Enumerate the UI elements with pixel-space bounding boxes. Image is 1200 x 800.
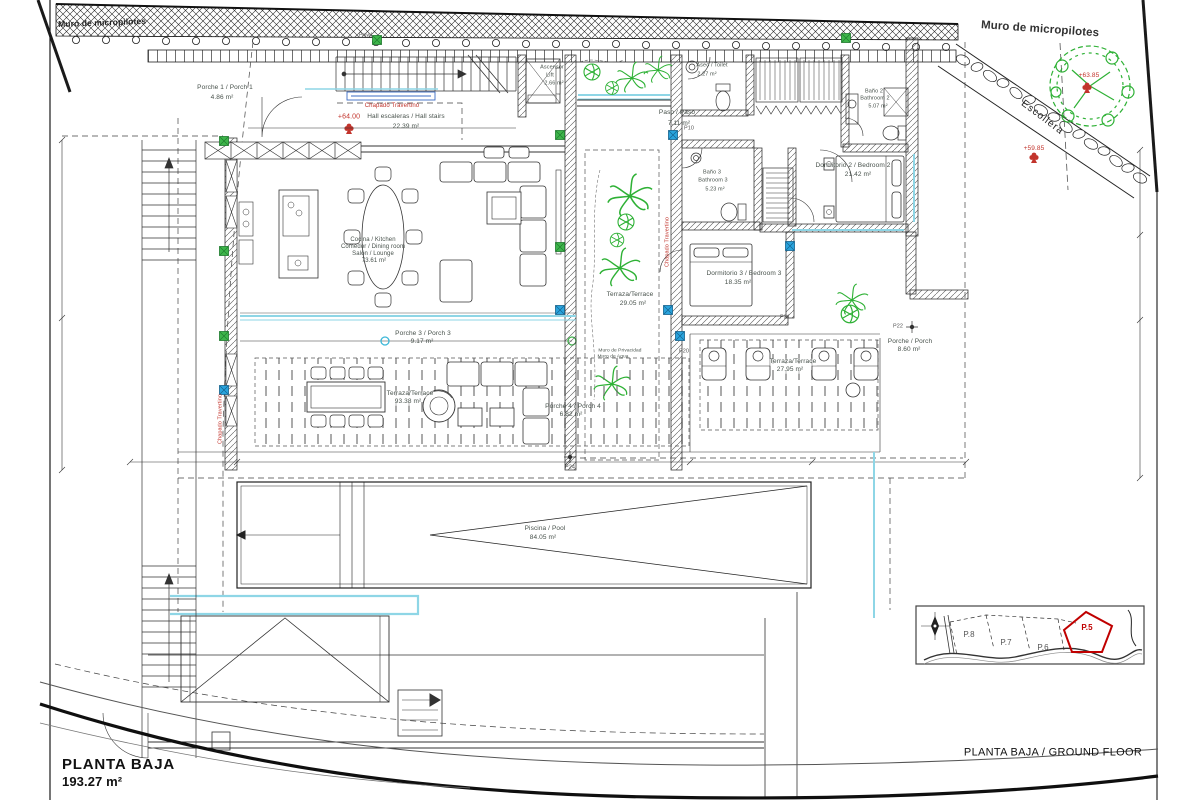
room-label-corridor: Paso / Paso bbox=[659, 110, 695, 117]
sheet-title-area: 193.27 m² bbox=[62, 775, 122, 788]
tree-icon bbox=[1050, 46, 1134, 126]
room-label-porch3: Porche 3 / Porch 3 bbox=[395, 331, 451, 338]
room-area-lift: 2.66 m² bbox=[544, 81, 563, 87]
finish-travertine-hall: Chapado Travertino bbox=[365, 103, 420, 109]
room-area-terrace-center: 29.05 m² bbox=[620, 301, 646, 308]
inset-plot5-label: P.5 bbox=[1081, 624, 1092, 632]
drawing-sheet: Muro de micropilotes Muro de micropilote… bbox=[0, 0, 1200, 800]
room-label-living-1: Cocina / Kitchen bbox=[350, 237, 395, 243]
marker-label-p24: P24 bbox=[565, 465, 575, 471]
level-marker-63 bbox=[1082, 83, 1091, 93]
marker-label-p22: P22 bbox=[893, 324, 903, 330]
room-area-bath3: 5.23 m² bbox=[705, 187, 724, 193]
room-label-bath3-es: Baño 3 bbox=[703, 170, 721, 176]
sheet-subtitle: PLANTA BAJA / GROUND FLOOR bbox=[964, 748, 1142, 759]
room-area-porch3: 9.17 m² bbox=[411, 339, 434, 346]
level-marker-59 bbox=[1029, 153, 1038, 163]
level-59-label: +59.85 bbox=[1024, 146, 1045, 153]
floor-plan-linework bbox=[0, 0, 1200, 800]
room-label-porch4: Porche 4 / Porch 4 bbox=[545, 404, 601, 411]
room-label-pool: Piscina / Pool bbox=[525, 526, 566, 533]
side-table bbox=[846, 383, 860, 397]
room-area-terrace-east: 27.95 m² bbox=[777, 367, 803, 374]
lounge-sofa bbox=[440, 147, 561, 302]
pool bbox=[237, 482, 811, 588]
inset-plot7-label: P.7 bbox=[1000, 639, 1011, 647]
marker-label-p20: P20 bbox=[679, 349, 689, 355]
entrance-door-arc bbox=[262, 97, 302, 137]
room-label-terrace-main: Terraza/Terrace bbox=[387, 391, 434, 398]
room-label-bed2: Dormitorio 2 / Bedroom 2 bbox=[815, 163, 890, 170]
room-label-hall: Hall escaleras / Hall stairs bbox=[367, 114, 445, 121]
porch-bush bbox=[841, 305, 859, 323]
room-area-bath2: 5.07 m² bbox=[868, 104, 887, 110]
west-exterior-stairs bbox=[142, 140, 196, 758]
room-label-terrace-east: Terraza/Terrace bbox=[770, 359, 817, 366]
kitchen-island bbox=[239, 190, 318, 278]
room-label-terrace-center: Terraza/Terrace bbox=[607, 292, 654, 299]
room-label-porch1: Porche 1 / Porch 1 bbox=[197, 85, 253, 92]
finish-travertine-west: Chapado Travertino bbox=[218, 394, 224, 444]
road-curves bbox=[40, 682, 1158, 798]
room-label-bath2-es: Baño 2 bbox=[865, 89, 883, 95]
living-south-glazing bbox=[240, 313, 576, 320]
patio-planter bbox=[578, 56, 672, 99]
room-label-lift-en: Lift bbox=[546, 73, 554, 79]
room-area-porch1: 4.86 m² bbox=[211, 95, 234, 102]
location-inset bbox=[916, 606, 1144, 664]
room-label-lift-es: Ascensor bbox=[540, 65, 564, 71]
level-marker-64 bbox=[344, 124, 353, 134]
room-area-pool: 84.05 m² bbox=[530, 535, 556, 542]
inset-plot8-label: P.8 bbox=[963, 631, 974, 639]
level-64-label: +64.00 bbox=[338, 114, 360, 121]
finish-travertine-terrace: Chapado Travertino bbox=[665, 217, 671, 267]
bath3-fixtures bbox=[682, 148, 746, 221]
room-label-living-3: Salón / Lounge bbox=[352, 251, 394, 257]
ring-beam bbox=[148, 50, 956, 62]
marker-label-p10: P10 bbox=[684, 126, 694, 132]
terrace-east-deck bbox=[700, 340, 878, 430]
room-area-toilet: 2.27 m² bbox=[697, 72, 716, 78]
room-area-bed3: 18.35 m² bbox=[725, 280, 751, 287]
room-area-bed2: 21.42 m² bbox=[845, 172, 871, 179]
terrace-main-deck bbox=[255, 358, 689, 446]
pile-ref-label: Pmw1 bbox=[359, 34, 373, 39]
room-area-living: 73.61 m² bbox=[362, 258, 386, 264]
level-63-label: +63.85 bbox=[1079, 73, 1100, 80]
room-label-living-2: Comedor / Dining room bbox=[341, 244, 405, 250]
room-label-bath2-en: Bathroom 2 bbox=[860, 96, 889, 102]
room-label-toilet: Aseo / Toilet bbox=[696, 63, 727, 69]
room-area-porch-east: 8.60 m² bbox=[898, 347, 921, 354]
pool-deck-edge-cyan bbox=[170, 596, 418, 614]
room-area-porch4: 6.82 m² bbox=[560, 412, 583, 419]
travertine-bench bbox=[347, 92, 435, 100]
privacy-wall-label-2: Muro de Agua bbox=[597, 356, 628, 361]
hall-staircase bbox=[336, 55, 516, 93]
room-area-hall: 22.39 m² bbox=[393, 124, 419, 131]
inset-plot6-label: P.6 bbox=[1037, 644, 1048, 652]
marker-label-p21: P21 bbox=[780, 315, 790, 321]
room-label-bath3-en: Bathroom 3 bbox=[698, 178, 727, 184]
survey-point-p22 bbox=[906, 321, 918, 333]
lower-structure bbox=[103, 592, 797, 797]
sheet-title: PLANTA BAJA bbox=[62, 757, 175, 772]
room-label-bed3: Dormitorio 3 / Bedroom 3 bbox=[706, 271, 781, 278]
room-label-porch-east: Porche / Porch bbox=[888, 339, 932, 346]
room-area-terrace-main: 93.38 m² bbox=[395, 399, 421, 406]
micropile-wall-band bbox=[56, 4, 958, 62]
